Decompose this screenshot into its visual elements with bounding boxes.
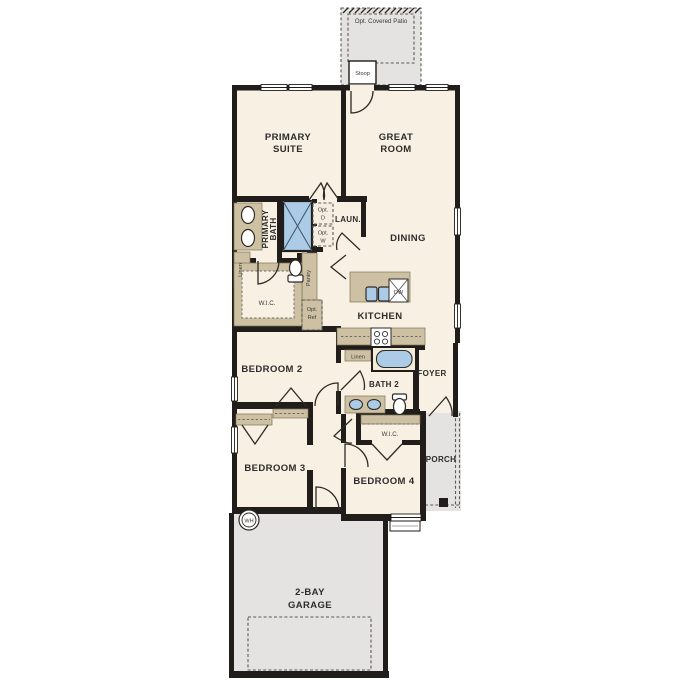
opt-ref-label-1: Opt.	[307, 307, 318, 313]
dishwasher-label: DW	[394, 290, 404, 296]
entry-door-opening	[350, 85, 374, 92]
wall-garage-right	[383, 521, 388, 678]
linen-bath2-label: Linen	[351, 355, 365, 361]
bath2-sink-1	[350, 400, 363, 410]
wall-wic2-bottom-b	[402, 440, 420, 445]
wic2-label: W.I.C.	[382, 431, 399, 438]
window-right-dining	[455, 208, 461, 235]
opt-washer-box: Opt. W	[313, 226, 333, 246]
bath2-toilet	[393, 394, 407, 415]
window-top-1	[261, 85, 287, 91]
window-bed4-bottom	[391, 514, 421, 521]
water-heater: WH	[239, 510, 259, 530]
floor-bed4	[341, 409, 426, 517]
linen-primary-label: Linen	[238, 263, 244, 277]
bath2-label: BATH 2	[369, 380, 399, 389]
bedroom2-label: BEDROOM 2	[241, 364, 302, 375]
porch-label: PORCH	[426, 455, 456, 464]
garage-label-1: 2-BAY	[295, 587, 325, 598]
wall-bed4-right	[420, 411, 426, 521]
opt-dryer-box: Opt. D	[313, 203, 333, 224]
primary-bath-label-2: BATH	[269, 218, 278, 241]
wic1-label: W.I.C.	[259, 300, 276, 307]
shower	[283, 201, 312, 251]
porch-column	[439, 498, 448, 507]
wall-bed2-bottom	[232, 402, 313, 409]
window-top-3	[389, 85, 415, 91]
stoop-label: Stoop	[355, 71, 370, 77]
wall-laundry-right	[361, 196, 366, 237]
wall-garage-bottom	[229, 671, 389, 678]
bedroom4-label: BEDROOM 4	[353, 476, 414, 487]
range	[371, 328, 391, 347]
stoop: Stoop	[349, 61, 376, 84]
kitchen-label: KITCHEN	[357, 311, 402, 322]
opt-ref-label-2: Ref	[308, 315, 317, 321]
opt-washer-line2: W	[320, 239, 326, 245]
dining-label: DINING	[390, 233, 426, 244]
floor-foyer	[415, 343, 458, 413]
wall-bed4-left-b	[341, 468, 346, 514]
primary-suite-label-2: SUITE	[273, 144, 303, 155]
dishwasher: DW	[389, 279, 408, 302]
wall-bed2-top	[232, 326, 341, 332]
window-left-bed2	[232, 377, 238, 401]
laundry-label: LAUN.	[335, 215, 361, 224]
water-heater-label: WH	[244, 519, 253, 525]
window-left-bed3	[232, 427, 238, 453]
bedroom3-label: BEDROOM 3	[244, 463, 305, 474]
window-top-4	[426, 85, 448, 91]
primary-suite-label-1: PRIMARY	[265, 132, 312, 143]
primary-toilet	[288, 260, 303, 282]
opt-dryer-line1: Opt.	[318, 208, 329, 214]
wic1-floor	[242, 271, 294, 318]
wall-wic2-bottom-a	[356, 440, 372, 445]
opt-dryer-line2: D	[321, 216, 325, 222]
primary-sink-2	[242, 230, 255, 247]
bath2-sink-2	[368, 400, 381, 410]
wall-foyer-right	[453, 343, 458, 417]
garage-label-2: GARAGE	[288, 600, 332, 611]
wall-primary-great	[341, 87, 346, 199]
window-right-kitchen	[455, 304, 461, 328]
foyer-label: FOYER	[417, 369, 446, 378]
window-top-2	[289, 85, 312, 91]
wall-bed3-right-b	[307, 470, 313, 512]
wic2-shelf	[361, 415, 420, 424]
patio-label: Opt. Covered Patio	[355, 18, 408, 25]
pantry-label: Pantry	[306, 270, 312, 286]
great-room-label-2: ROOM	[380, 144, 411, 155]
wall-garage-left	[229, 513, 234, 678]
primary-sink-1	[242, 207, 255, 224]
opt-washer-line1: Opt.	[318, 231, 329, 237]
floor-plan: Stoop	[0, 0, 687, 687]
great-room-label-1: GREAT	[379, 132, 414, 143]
bathtub	[372, 347, 416, 371]
